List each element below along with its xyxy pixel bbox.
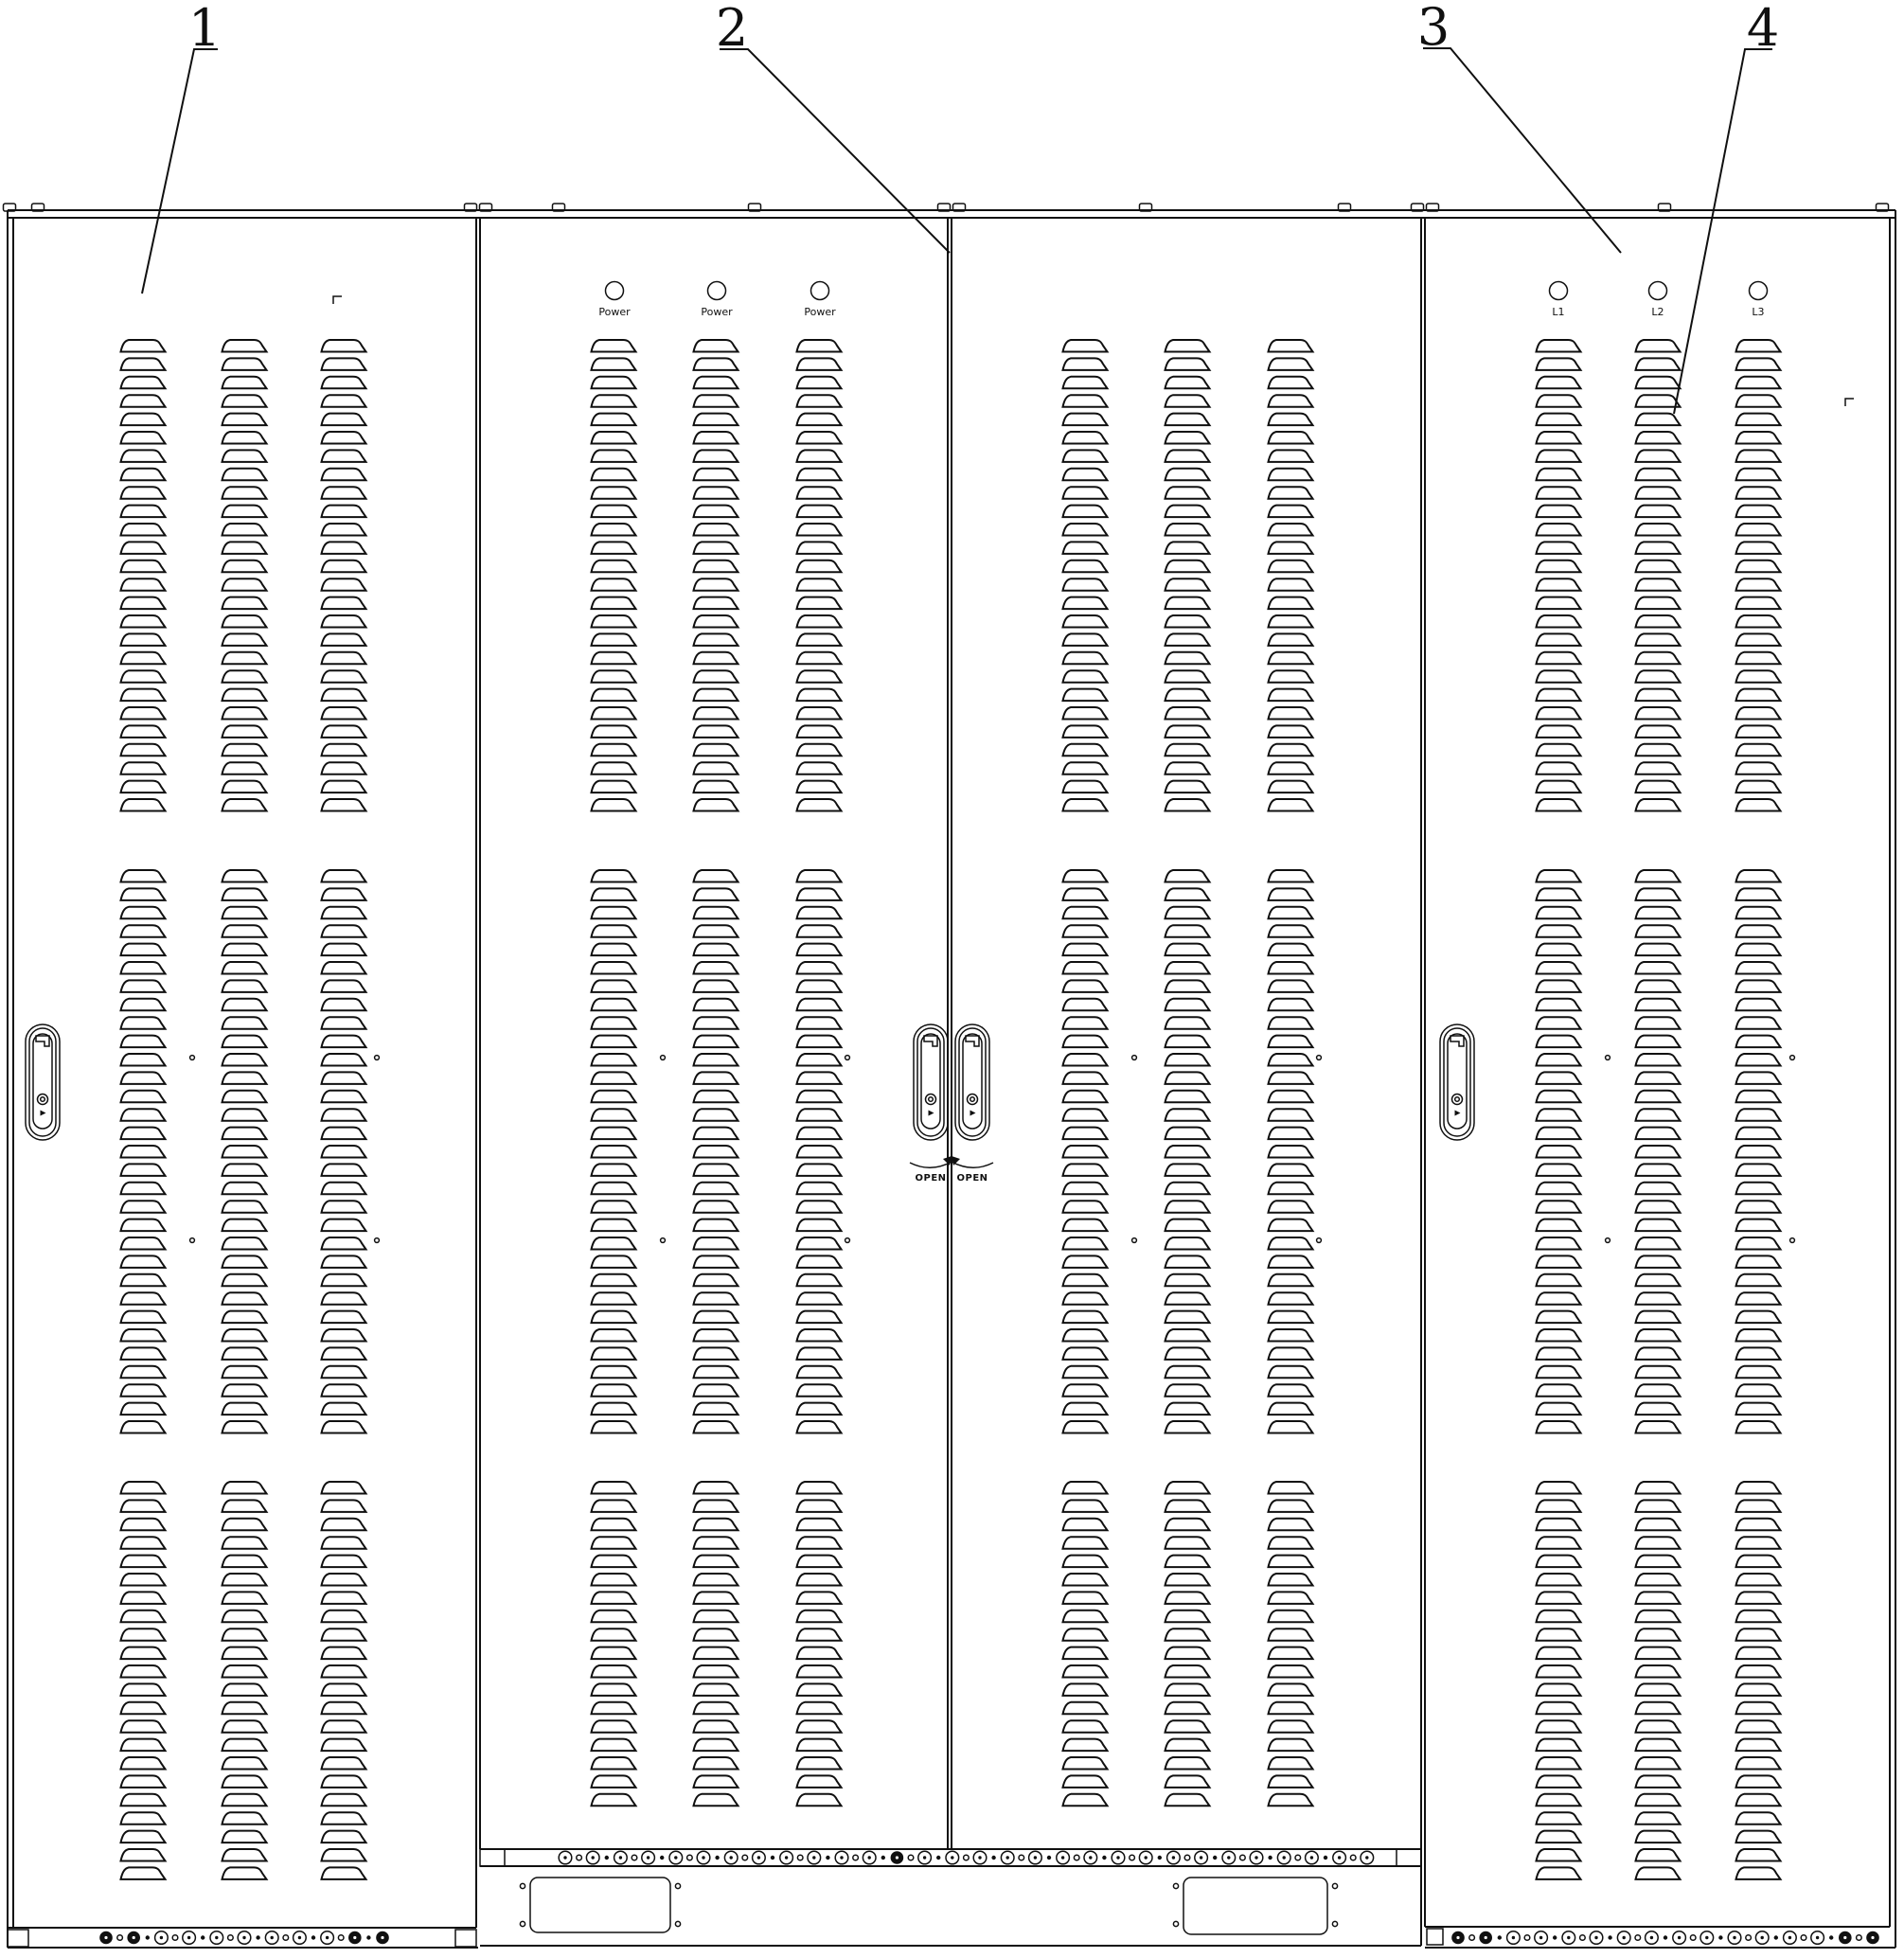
louver-vent-cabinet2 [592, 762, 636, 774]
louver-vent-cabinet4 [1736, 1739, 1781, 1752]
base-bolt [1755, 1931, 1769, 1945]
louver-vent-cabinet2 [797, 395, 842, 407]
louver-vent-cabinet1 [222, 944, 267, 956]
power-lamp-2 [708, 282, 726, 300]
base-vent-hole [1184, 1855, 1190, 1860]
louver-vent-cabinet1 [121, 1500, 166, 1512]
louver-vent-cabinet3 [1166, 944, 1210, 956]
base-vent-hole [117, 1935, 123, 1941]
base-vent-hole [1074, 1855, 1079, 1860]
louver-vent-cabinet3 [1166, 1237, 1210, 1250]
louver-vent-cabinet1 [121, 1556, 166, 1568]
louver-vent-cabinet2 [797, 762, 842, 774]
louver-vent-cabinet2 [592, 1347, 636, 1360]
louver-vent-cabinet3 [1166, 506, 1210, 518]
louver-vent-cabinet1 [222, 1072, 267, 1084]
base-bolt [724, 1851, 738, 1864]
louver-vent-cabinet4 [1636, 744, 1681, 756]
louver-vent-cabinet2 [797, 1036, 842, 1048]
door-screw-dot-cabinet4 [1606, 1056, 1610, 1060]
louver-vent-cabinet2 [592, 1739, 636, 1752]
louver-vent-cabinet1 [121, 1164, 166, 1176]
louver-vent-cabinet4 [1537, 1849, 1581, 1861]
louver-vent-cabinet4 [1537, 395, 1581, 407]
louver-vent-cabinet1 [121, 870, 166, 882]
louver-vent-cabinet1 [322, 1237, 366, 1250]
louver-vent-cabinet2 [694, 799, 738, 811]
louver-vent-cabinet1 [121, 1237, 166, 1250]
cabinet-frames [4, 204, 1896, 1948]
louver-vent-cabinet1 [222, 1831, 267, 1843]
louver-vent-cabinet3 [1269, 542, 1313, 554]
louver-vent-cabinet2 [592, 799, 636, 811]
louver-vent-cabinet4 [1636, 999, 1681, 1011]
louver-vent-cabinet2 [694, 1702, 738, 1715]
louver-vent-cabinet3 [1063, 888, 1108, 900]
louver-vent-cabinet2 [797, 1164, 842, 1176]
louver-vent-cabinet2 [592, 1311, 636, 1324]
louver-vent-cabinet3 [1269, 1219, 1313, 1232]
louver-vent-cabinet2 [694, 1500, 738, 1512]
louver-vent-cabinet4 [1636, 1757, 1681, 1770]
louver-vent-cabinet3 [1269, 1366, 1313, 1379]
louver-vent-cabinet2 [694, 762, 738, 774]
phase-lamp-L3 [1750, 282, 1768, 300]
louver-vent-cabinet4 [1736, 1128, 1781, 1140]
louver-vent-cabinet1 [322, 1292, 366, 1305]
louver-vent-cabinet3 [1269, 633, 1313, 646]
louver-vent-cabinet3 [1166, 1647, 1210, 1660]
base-vent-hole [1158, 1856, 1162, 1860]
louver-vent-cabinet3 [1166, 725, 1210, 738]
louver-vent-cabinet3 [1063, 1164, 1108, 1176]
louver-vent-cabinet2 [797, 1109, 842, 1121]
louver-vent-cabinet3 [1166, 542, 1210, 554]
base-vent-hole [1801, 1935, 1806, 1941]
louver-vent-cabinet1 [121, 615, 166, 628]
louver-vent-cabinet1 [222, 980, 267, 992]
louver-vent-cabinet1 [322, 1739, 366, 1752]
louver-vent-cabinet1 [322, 450, 366, 462]
louver-vent-cabinet3 [1166, 358, 1210, 370]
louver-vent-cabinet1 [222, 1500, 267, 1512]
louver-vent-cabinet1 [121, 1292, 166, 1305]
louver-vent-cabinet2 [592, 395, 636, 407]
base-vent-hole [1524, 1935, 1530, 1941]
louver-vent-cabinet1 [121, 1146, 166, 1158]
louver-vent-cabinet1 [121, 1592, 166, 1604]
louver-vent-cabinet2 [592, 1054, 636, 1066]
louver-vent-cabinet4 [1736, 340, 1781, 352]
louver-vent-cabinet2 [797, 340, 842, 352]
louver-vent-cabinet4 [1636, 888, 1681, 900]
louver-vent-cabinet3 [1166, 1183, 1210, 1195]
louver-vent-cabinet3 [1063, 999, 1108, 1011]
louver-vent-cabinet4 [1636, 615, 1681, 628]
louver-vent-cabinet4 [1736, 1329, 1781, 1342]
louver-vent-cabinet4 [1736, 1702, 1781, 1715]
louver-vent-cabinet3 [1166, 1794, 1210, 1807]
louver-vent-cabinet3 [1269, 980, 1313, 992]
louver-vent-cabinet2 [797, 725, 842, 738]
louver-vent-cabinet2 [592, 1702, 636, 1715]
louver-vent-cabinet1 [121, 652, 166, 665]
louver-vent-cabinet3 [1063, 1366, 1108, 1379]
louver-vent-cabinet1 [121, 1574, 166, 1586]
louver-vent-cabinet2 [694, 907, 738, 919]
louver-vent-cabinet4 [1537, 633, 1581, 646]
louver-vent-cabinet1 [222, 1592, 267, 1604]
louver-vent-cabinet3 [1166, 744, 1210, 756]
louver-vent-cabinet1 [121, 670, 166, 683]
louver-vent-cabinet4 [1736, 689, 1781, 702]
louver-vent-cabinet3 [1063, 1629, 1108, 1641]
louver-vent-cabinet2 [797, 633, 842, 646]
louver-vent-cabinet4 [1537, 340, 1581, 352]
louver-vent-cabinet4 [1537, 1329, 1581, 1342]
louver-vent-cabinet1 [322, 1794, 366, 1807]
louver-vent-cabinet1 [322, 377, 366, 389]
louver-vent-cabinet2 [797, 1128, 842, 1140]
louver-vent-cabinet1 [322, 980, 366, 992]
louver-vent-cabinet4 [1537, 377, 1581, 389]
louver-vent-cabinet2 [797, 506, 842, 518]
louver-vent-cabinet1 [121, 980, 166, 992]
base-bolt [210, 1931, 223, 1945]
base-bolt [669, 1851, 683, 1864]
louver-vent-cabinet2 [797, 1201, 842, 1213]
louver-vent-cabinet2 [592, 670, 636, 683]
louver-vent-cabinet4 [1537, 578, 1581, 591]
louver-vent-cabinet4 [1537, 1091, 1581, 1103]
louver-vent-cabinet2 [797, 414, 842, 426]
louver-vent-cabinet4 [1537, 506, 1581, 518]
louver-vent-cabinet4 [1736, 1201, 1781, 1213]
louver-vent-cabinet1 [322, 1146, 366, 1158]
door-screw-dot-cabinet1 [190, 1056, 195, 1060]
louver-vent-cabinet3 [1269, 1109, 1313, 1121]
louver-vent-cabinet3 [1269, 1794, 1313, 1807]
louver-vent-cabinet3 [1166, 999, 1210, 1011]
louver-vent-cabinet1 [121, 1720, 166, 1733]
louver-vent-cabinet2 [797, 1421, 842, 1433]
base-vent-hole [715, 1856, 719, 1860]
louver-vent-cabinet1 [121, 1775, 166, 1788]
louver-vent-cabinet2 [592, 707, 636, 720]
louver-vent-cabinet4 [1636, 1849, 1681, 1861]
louver-vent-cabinet3 [1063, 1054, 1108, 1066]
louver-vent-cabinet4 [1636, 799, 1681, 811]
louver-vent-cabinet3 [1269, 1146, 1313, 1158]
power-lamp-label-1: Power [598, 306, 631, 318]
louver-vent-cabinet4 [1636, 725, 1681, 738]
louver-vent-cabinet4 [1736, 1794, 1781, 1807]
louver-vent-cabinet2 [592, 1775, 636, 1788]
louver-vent-cabinet1 [222, 1757, 267, 1770]
louver-vent-cabinet2 [694, 1384, 738, 1397]
base-bolt [376, 1931, 389, 1945]
louver-vent-cabinet3 [1166, 395, 1210, 407]
louver-vent-cabinet4 [1736, 1311, 1781, 1324]
louver-vent-cabinet1 [121, 907, 166, 919]
louver-vent-cabinet3 [1063, 980, 1108, 992]
louver-vent-cabinet1 [322, 1849, 366, 1861]
louver-vent-cabinet4 [1736, 1072, 1781, 1084]
louver-vent-cabinet4 [1636, 1109, 1681, 1121]
louver-vent-cabinet1 [322, 1812, 366, 1824]
louver-vent-cabinet4 [1736, 1592, 1781, 1604]
louver-vent-cabinet1 [222, 578, 267, 591]
louver-vent-cabinet1 [222, 1629, 267, 1641]
louver-vent-cabinet2 [694, 1794, 738, 1807]
louver-vent-cabinet2 [694, 1164, 738, 1176]
louver-vent-cabinet2 [797, 615, 842, 628]
louver-vent-cabinet4 [1736, 1482, 1781, 1494]
louver-vent-cabinet3 [1063, 1537, 1108, 1549]
louver-vent-cabinet2 [797, 1537, 842, 1549]
louver-vent-cabinet2 [694, 1072, 738, 1084]
louver-vent-cabinet1 [121, 1812, 166, 1824]
louver-vent-cabinet1 [121, 1519, 166, 1531]
louver-vent-cabinet1 [222, 799, 267, 811]
louver-vent-cabinet2 [694, 506, 738, 518]
louver-vent-cabinet2 [592, 487, 636, 499]
louver-vent-cabinet3 [1166, 1683, 1210, 1696]
louver-vent-cabinet2 [592, 689, 636, 702]
louver-vent-cabinet4 [1736, 506, 1781, 518]
louver-vent-cabinet4 [1537, 1867, 1581, 1879]
louver-vent-cabinet2 [694, 561, 738, 573]
louver-vent-cabinet2 [797, 707, 842, 720]
louver-vent-cabinet4 [1636, 578, 1681, 591]
louver-vent-cabinet1 [121, 1794, 166, 1807]
louver-vent-cabinet2 [797, 1556, 842, 1568]
louver-vent-cabinet2 [694, 1109, 738, 1121]
louver-vent-cabinet4 [1537, 1036, 1581, 1048]
louver-vent-cabinet2 [797, 1219, 842, 1232]
base-bolt [1195, 1851, 1208, 1864]
louver-vent-cabinet4 [1537, 469, 1581, 481]
louver-vent-cabinet3 [1063, 1274, 1108, 1287]
louver-vent-cabinet1 [322, 1720, 366, 1733]
louver-vent-cabinet1 [222, 1146, 267, 1158]
louver-vent-cabinet1 [121, 762, 166, 774]
louver-vent-cabinet1 [222, 1556, 267, 1568]
louver-vent-cabinet3 [1269, 1757, 1313, 1770]
louver-vent-cabinet3 [1269, 1702, 1313, 1715]
louver-vent-cabinet4 [1736, 1831, 1781, 1843]
louver-vent-cabinet3 [1166, 1403, 1210, 1415]
louver-vent-cabinet4 [1636, 1775, 1681, 1788]
louver-vent-cabinet3 [1063, 1329, 1108, 1342]
louver-vent-cabinet3 [1166, 1556, 1210, 1568]
louver-vent-cabinet1 [322, 615, 366, 628]
base-vent-hole [1690, 1935, 1696, 1941]
louver-vent-cabinet2 [694, 414, 738, 426]
louver-vent-cabinet2 [694, 395, 738, 407]
louver-vent-cabinet3 [1166, 1292, 1210, 1305]
louver-vent-cabinet4 [1537, 561, 1581, 573]
base-bolt [1250, 1851, 1263, 1864]
louver-vent-cabinet1 [121, 1219, 166, 1232]
louver-vent-cabinet1 [222, 1683, 267, 1696]
louver-vent-cabinet2 [797, 1183, 842, 1195]
louver-vent-cabinet4 [1636, 1831, 1681, 1843]
louver-vent-cabinet2 [592, 414, 636, 426]
louver-vent-cabinet3 [1166, 524, 1210, 536]
louver-vent-cabinet2 [592, 450, 636, 462]
louver-vent-cabinet3 [1063, 907, 1108, 919]
louver-vent-cabinet1 [322, 689, 366, 702]
louver-vent-cabinet2 [592, 542, 636, 554]
louver-vent-cabinet4 [1736, 907, 1781, 919]
louver-vent-cabinet3 [1269, 781, 1313, 793]
louver-vent-cabinet3 [1269, 1017, 1313, 1029]
louver-vent-cabinet3 [1063, 1556, 1108, 1568]
base-bolt [1590, 1931, 1603, 1945]
louver-vent-cabinet4 [1636, 1867, 1681, 1879]
louver-vent-cabinet1 [222, 1720, 267, 1733]
louver-vent-cabinet3 [1269, 725, 1313, 738]
louver-vent-cabinet4 [1636, 1403, 1681, 1415]
louver-vent-cabinet1 [322, 358, 366, 370]
louver-vent-cabinet1 [121, 1347, 166, 1360]
louver-vent-cabinet4 [1636, 1128, 1681, 1140]
louver-vent-cabinet1 [121, 1255, 166, 1268]
louver-vent-cabinet3 [1166, 707, 1210, 720]
base-bolt [642, 1851, 655, 1864]
louver-vent-cabinet4 [1636, 1702, 1681, 1715]
louver-vent-cabinet4 [1736, 1403, 1781, 1415]
louver-vent-cabinet3 [1269, 1311, 1313, 1324]
louver-vent-cabinet2 [797, 542, 842, 554]
louver-vent-cabinet2 [592, 1183, 636, 1195]
louver-vent-cabinet3 [1063, 358, 1108, 370]
louver-vent-cabinet4 [1537, 1683, 1581, 1696]
louver-vent-cabinet4 [1736, 1017, 1781, 1029]
louver-vent-cabinet2 [592, 1384, 636, 1397]
louver-vent-cabinet4 [1636, 1482, 1681, 1494]
louver-vent-cabinet1 [322, 1867, 366, 1879]
louver-vent-cabinet1 [222, 1219, 267, 1232]
louver-vent-cabinet1 [222, 1274, 267, 1287]
base-vent-hole [1350, 1855, 1356, 1860]
louver-vent-cabinet1 [322, 1201, 366, 1213]
louver-vent-cabinet3 [1166, 597, 1210, 610]
louver-vent-cabinet4 [1537, 1072, 1581, 1084]
louver-vent-cabinet1 [322, 1128, 366, 1140]
louver-vent-cabinet4 [1736, 524, 1781, 536]
louver-vent-cabinet2 [797, 432, 842, 444]
louver-vent-cabinet4 [1537, 1629, 1581, 1641]
louver-vent-cabinet2 [797, 487, 842, 499]
louver-vent-cabinet4 [1636, 1683, 1681, 1696]
louver-vent-cabinet1 [222, 597, 267, 610]
door-screw-dot-cabinet4 [1606, 1238, 1610, 1243]
louver-vent-cabinet1 [222, 1255, 267, 1268]
louver-vent-cabinet4 [1636, 1647, 1681, 1660]
louver-vent-cabinet2 [797, 744, 842, 756]
louver-vent-cabinet1 [222, 1849, 267, 1861]
louver-vent-cabinet3 [1269, 907, 1313, 919]
louver-vent-cabinet1 [222, 1812, 267, 1824]
louver-vent-cabinet3 [1269, 1665, 1313, 1678]
louver-vent-cabinet3 [1166, 377, 1210, 389]
door-screw-dot-cabinet3 [1317, 1056, 1322, 1060]
louver-vent-cabinet3 [1269, 1201, 1313, 1213]
louver-vent-cabinet4 [1537, 799, 1581, 811]
phase-lamp-L1 [1550, 282, 1568, 300]
louver-vent-cabinet3 [1063, 377, 1108, 389]
base-bolt-strips [99, 1851, 1879, 1944]
louver-vent-cabinet2 [694, 1683, 738, 1696]
base-vent-hole [908, 1855, 914, 1860]
louver-vent-cabinet4 [1537, 1647, 1581, 1660]
louver-vent-cabinet1 [121, 377, 166, 389]
base-bolt [183, 1931, 196, 1945]
base-bolt [1811, 1931, 1824, 1945]
louver-vent-cabinet4 [1736, 1384, 1781, 1397]
louver-vent-cabinet2 [694, 542, 738, 554]
louver-vent-cabinet1 [121, 561, 166, 573]
louver-vent-cabinet3 [1063, 1292, 1108, 1305]
louver-vent-cabinet1 [222, 1537, 267, 1549]
louver-vent-cabinet1 [222, 432, 267, 444]
louver-vent-cabinet3 [1063, 1647, 1108, 1660]
louver-vent-cabinet4 [1537, 744, 1581, 756]
louver-vent-cabinet4 [1736, 944, 1781, 956]
louver-vent-cabinet1 [322, 1054, 366, 1066]
louver-vent-cabinet1 [322, 1036, 366, 1048]
louver-vent-cabinet2 [592, 377, 636, 389]
louver-vent-cabinet2 [797, 1629, 842, 1641]
louver-vent-cabinet1 [121, 1384, 166, 1397]
louver-vent-cabinet1 [121, 1403, 166, 1415]
louver-vent-cabinet2 [694, 1757, 738, 1770]
louver-vent-cabinet1 [322, 1274, 366, 1287]
louver-vent-cabinet3 [1166, 1036, 1210, 1048]
louver-vent-cabinet2 [592, 870, 636, 882]
louver-vent-cabinet1 [222, 744, 267, 756]
louver-vent-cabinet1 [322, 633, 366, 646]
louver-vent-cabinet1 [322, 1702, 366, 1715]
louver-vent-cabinet4 [1636, 652, 1681, 665]
callout-number-3: 3 [1417, 0, 1450, 57]
louver-vent-cabinet4 [1636, 597, 1681, 610]
louver-vent-cabinet3 [1063, 1311, 1108, 1324]
louver-vent-cabinet2 [592, 340, 636, 352]
louver-vent-cabinet4 [1537, 1054, 1581, 1066]
cabinet4-left-foot [1427, 1929, 1443, 1945]
louver-vent-cabinet1 [322, 1775, 366, 1788]
louver-vent-cabinet2 [592, 1421, 636, 1433]
louver-vent-cabinet4 [1736, 1183, 1781, 1195]
base-bolt [808, 1851, 821, 1864]
louver-vent-cabinet4 [1636, 1556, 1681, 1568]
louver-vent-cabinet1 [322, 1537, 366, 1549]
louver-vent-cabinet3 [1269, 799, 1313, 811]
louver-vent-cabinet2 [797, 561, 842, 573]
louver-vent-cabinet4 [1636, 1164, 1681, 1176]
louver-vent-cabinet4 [1537, 414, 1581, 426]
louver-vent-cabinet1 [322, 888, 366, 900]
door-handle-cabinet1 [26, 1024, 60, 1140]
louver-vent-cabinet3 [1166, 1384, 1210, 1397]
louver-vent-cabinet3 [1063, 1482, 1108, 1494]
louver-vent-cabinet1 [121, 707, 166, 720]
louver-vent-cabinet1 [222, 888, 267, 900]
louver-vent-cabinet3 [1063, 633, 1108, 646]
